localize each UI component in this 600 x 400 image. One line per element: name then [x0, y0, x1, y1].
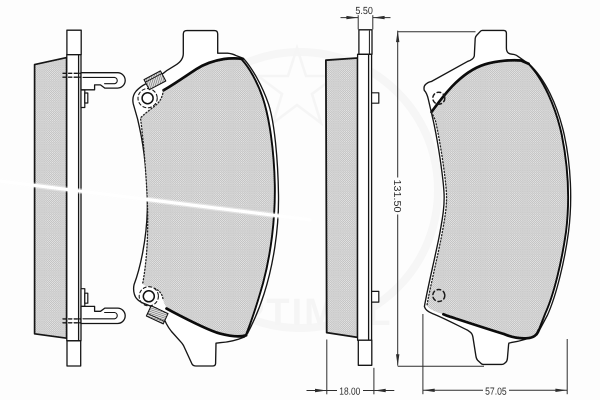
svg-text:5.50: 5.50 [355, 6, 373, 17]
svg-text:131.50: 131.50 [391, 180, 402, 213]
svg-text:57.05: 57.05 [485, 387, 507, 398]
svg-text:18.00: 18.00 [339, 387, 360, 398]
